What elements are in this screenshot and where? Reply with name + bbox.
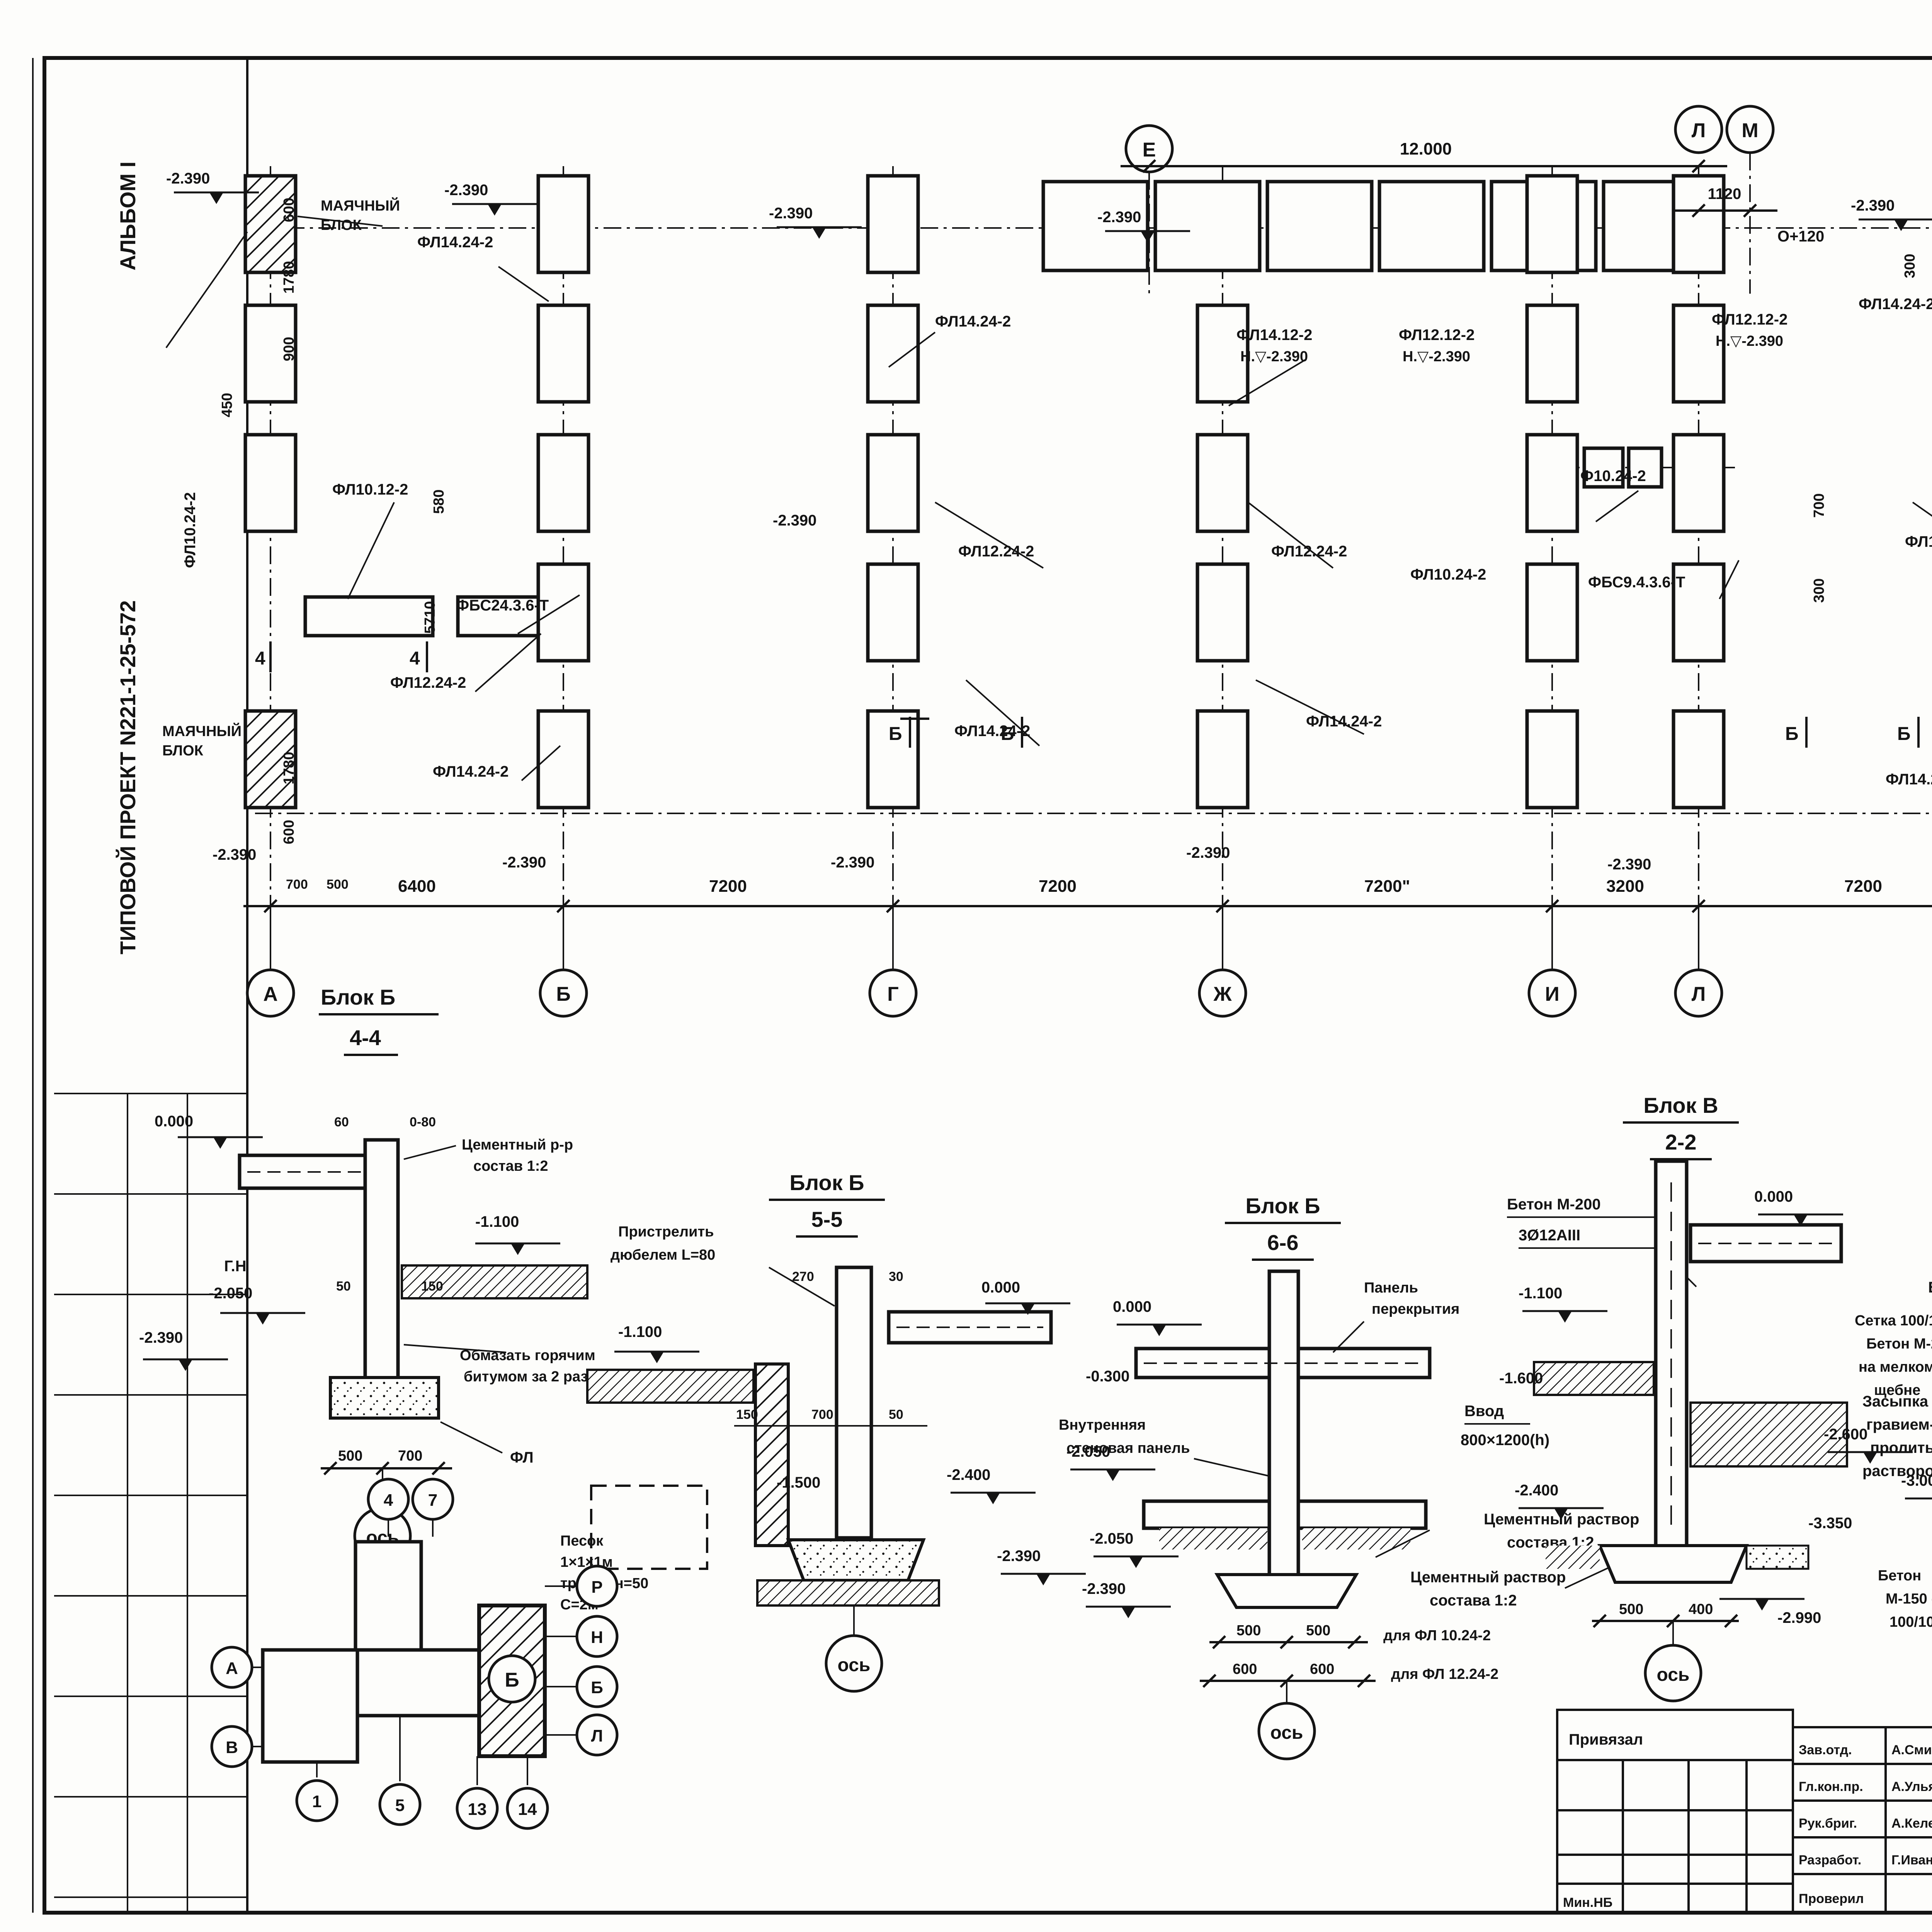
- elevation: -2.400: [947, 1466, 990, 1483]
- keyplan-axis: 7: [428, 1491, 437, 1510]
- stamp-cell: Проверил: [1799, 1891, 1864, 1906]
- dim: 700: [811, 1407, 833, 1422]
- plan-label: ФЛ14.24-2: [1306, 713, 1382, 730]
- cut-mark: 4: [255, 648, 265, 669]
- elevation: -2.390: [139, 1329, 183, 1346]
- stamp-cell: Рук.бриг.: [1799, 1816, 1857, 1831]
- elevation: 0.000: [155, 1113, 193, 1130]
- callout: 800×1200(h): [1461, 1432, 1549, 1449]
- dim: 600: [1310, 1661, 1334, 1677]
- dim: 300: [1811, 578, 1827, 603]
- stamp-cell: Г.Иванова: [1891, 1853, 1932, 1867]
- elevation: -1.100: [475, 1213, 519, 1230]
- callout: перекрытия: [1372, 1301, 1459, 1317]
- elevation: -2.390: [831, 854, 874, 871]
- elevation: -3.000: [1901, 1472, 1932, 1489]
- elevation: 0.000: [981, 1279, 1020, 1296]
- stamp-cell: А.Ульяновский: [1891, 1779, 1932, 1794]
- axis-bubble: Г: [887, 983, 898, 1005]
- elevation: О+120: [1777, 228, 1824, 245]
- stamp-cell: А.Смирновский: [1891, 1743, 1932, 1757]
- margin-album: АЛЬБОМ I: [116, 162, 140, 270]
- axis-dim: 7200: [1844, 877, 1882, 896]
- section-title: 6-6: [1267, 1230, 1299, 1255]
- axis-bubble: И: [1545, 983, 1559, 1005]
- axis-bubble: ось: [838, 1655, 871, 1675]
- callout: Внутренняя: [1059, 1417, 1146, 1433]
- section-2-2: Блок В 2-2 Бетон М-200 3Ø12АIII 0.000 -1…: [1410, 1093, 1932, 1701]
- callout: М-150 сетки: [1886, 1591, 1932, 1607]
- callout: БЛОК: [162, 743, 204, 759]
- section-8-8: Блок Г 8-8 0.000 -0.050 -0.500 200 Бетон…: [1808, 1103, 1932, 1639]
- dim: 50: [336, 1279, 351, 1294]
- section-title: Блок Б: [1245, 1194, 1320, 1218]
- elevation: -1.600: [1499, 1370, 1543, 1387]
- key-plan: Б 4 7 А В 1 5 13 14 Р Н Б Л: [212, 1479, 617, 1828]
- axis-bubble: Ж: [1213, 983, 1232, 1005]
- elevation: -2.390: [1097, 209, 1141, 226]
- plan-label: Н.▽-2.390: [1716, 333, 1783, 349]
- section-title: Блок В: [1643, 1093, 1718, 1117]
- plan-label: ФБС24.3.6-Т: [456, 597, 549, 614]
- dim: 1120: [1708, 185, 1742, 202]
- axis-bubble: М: [1742, 119, 1758, 142]
- plan-label: ФЛ14.12-2: [1236, 327, 1312, 344]
- plan-label: ФЛ14.24-2: [954, 723, 1030, 740]
- axis-bubble: А: [263, 983, 278, 1005]
- axis-dim: 7200: [1039, 877, 1077, 896]
- keyplan-axis: А: [226, 1659, 238, 1678]
- keyplan-block: Б: [505, 1669, 519, 1691]
- callout: битумом за 2 раза: [464, 1369, 596, 1385]
- callout: Цементный раствор: [1410, 1569, 1566, 1586]
- leader-lines: [166, 216, 1932, 885]
- elevation: -3.350: [1808, 1515, 1852, 1532]
- elevation: -2.390: [1082, 1580, 1126, 1597]
- plan-label: Н.▽-2.390: [1240, 349, 1308, 365]
- plan-label: ФЛ12.24-2: [390, 674, 466, 691]
- axis-bubble: Е: [1143, 139, 1156, 161]
- section-title: 5-5: [811, 1207, 843, 1231]
- dim: 50: [889, 1407, 903, 1422]
- elevation: -1.100: [1519, 1285, 1562, 1302]
- plan-label: ФЛ10.24-2: [1410, 566, 1486, 583]
- callout: Обмазать горячим: [460, 1347, 595, 1364]
- elevation: -2.990: [1777, 1609, 1821, 1626]
- dim: 150: [736, 1407, 758, 1422]
- keyplan-axis: 14: [518, 1800, 537, 1819]
- plan-label: ФЛ14.24-2: [417, 234, 493, 251]
- stamp-cell: Зав.отд.: [1799, 1743, 1852, 1757]
- elevation: -2.390: [444, 182, 488, 199]
- callout: пролитым цемент.: [1870, 1439, 1932, 1456]
- elevation: -2.600: [1824, 1426, 1867, 1443]
- callout: состава 1:2: [1430, 1592, 1517, 1609]
- axis-dim: 7200: [709, 877, 747, 896]
- plan-label: ФЛ14.24-2: [1886, 771, 1932, 788]
- elevation: -2.050: [1090, 1530, 1133, 1547]
- keyplan-axis: Р: [591, 1578, 602, 1597]
- stamp-cell: Гл.кон.пр.: [1799, 1779, 1863, 1794]
- axis-bubble: ось: [1270, 1723, 1303, 1743]
- axis-bubble: ось: [1657, 1665, 1690, 1685]
- plan-label: ФБС9.4.3.6-Т: [1588, 574, 1685, 591]
- cut-mark: Б: [1001, 724, 1014, 744]
- elevation: -2.400: [1515, 1482, 1558, 1499]
- plan-axis-row: 6400 7200 7200 7200" 3200 7200 7200 А Б …: [243, 877, 1932, 1055]
- callout: Бетон М-200: [1507, 1196, 1601, 1213]
- foundation-plan: ФЛ14.24-2 ФЛ14.24-2 ФЛ14.12-2 Н.▽-2.390 …: [162, 106, 1932, 1055]
- elevation: -2.390: [1186, 844, 1230, 861]
- plan-label: ФЛ12.24-2: [958, 543, 1034, 560]
- title-block: Привязал Мин.НБ Зав.отд. А.Смирновский Г…: [1557, 1615, 1932, 1932]
- callout: Цементный р-р: [462, 1137, 573, 1153]
- callout: Ввод: [1464, 1403, 1504, 1420]
- callout: Г.Н: [224, 1258, 247, 1275]
- callout: Бетон М-200: [1928, 1279, 1932, 1296]
- elevation: -2.390: [997, 1548, 1041, 1565]
- dim: 12.000: [1400, 139, 1452, 158]
- stamp-cell: А.Келерман: [1891, 1816, 1932, 1831]
- callout: МАЯЧНЫЙ: [321, 197, 400, 214]
- plan-elevations: -2.390 -2.390 -2.390 -2.390 -2.390 -2.39…: [166, 168, 1932, 877]
- plan-label: ФЛ12.12-2: [1399, 327, 1475, 344]
- dim: 700: [1811, 493, 1827, 518]
- section-title: Блок Б: [789, 1170, 864, 1195]
- dim: 150: [421, 1279, 443, 1294]
- dim: 600: [281, 820, 297, 844]
- plan-section-ref: 4-4: [350, 1026, 381, 1050]
- callout: Бетон М-200: [1866, 1336, 1932, 1352]
- axis-dim: 7200": [1364, 877, 1410, 896]
- dim: 1780: [281, 752, 297, 784]
- callout: на мелком: [1859, 1359, 1932, 1375]
- elevation: -0.300: [1086, 1368, 1129, 1385]
- dim: 500: [338, 1448, 362, 1464]
- dim: 500: [1306, 1622, 1330, 1639]
- dim: 900: [281, 337, 297, 361]
- callout: МАЯЧНЫЙ: [162, 722, 241, 740]
- elevation: -2.050: [209, 1285, 252, 1302]
- callout: Пристрелить: [618, 1224, 714, 1240]
- stamp-cell: Привязал: [1569, 1731, 1643, 1748]
- keyplan-axis: Н: [591, 1628, 603, 1647]
- elevation: -2.390: [502, 854, 546, 871]
- axis-dim: 6400: [398, 877, 436, 896]
- callout: состав 1:2: [473, 1158, 548, 1174]
- elevation: -1.100: [618, 1323, 662, 1340]
- dim: 400: [1689, 1601, 1713, 1617]
- elevation: -2.390: [773, 512, 816, 529]
- margin-project-number: ТИПОВОЙ ПРОЕКТ N221-1-25-572: [116, 600, 140, 954]
- keyplan-axis: Л: [591, 1726, 603, 1745]
- margin-grid: [54, 1094, 247, 1913]
- dim: 450: [219, 393, 235, 417]
- plan-label: ФЛ12.12-2: [1712, 311, 1787, 328]
- cut-mark: Б: [889, 724, 902, 744]
- dim: 600: [1233, 1661, 1257, 1677]
- axis-bubble: Л: [1692, 983, 1706, 1005]
- dim: 0-80: [410, 1115, 436, 1129]
- callout: Песок: [560, 1533, 604, 1549]
- plan-label: ФЛ14.24-2: [935, 313, 1011, 330]
- elevation: -2.390: [1851, 197, 1895, 214]
- plan-label: ФЛ10.12-2: [332, 481, 408, 498]
- dim: 60: [334, 1115, 349, 1129]
- plan-label: ФЛ14.24-2: [433, 763, 509, 780]
- callout: ФЛ: [510, 1449, 534, 1466]
- axis-bubble: Б: [556, 983, 570, 1005]
- keyplan-axis: 4: [384, 1491, 393, 1510]
- sheet-frame: 12 ТИПОВОЙ ПРОЕКТ N221-1-25-572 АЛЬБОМ I: [33, 19, 1932, 1913]
- keyplan-axis: В: [226, 1738, 238, 1757]
- elevation: -2.390: [166, 170, 210, 187]
- lighthouse-block-callouts: МАЯЧНЫЙ БЛОК МАЯЧНЫЙ БЛОК МАЯЧНЫЙ БЛОК М…: [162, 181, 1932, 894]
- callout: для ФЛ 12.24-2: [1391, 1666, 1498, 1682]
- dim: 580: [431, 490, 447, 514]
- callout: 100/100/8/8: [1889, 1614, 1932, 1630]
- stamp-cell: Разработ.: [1799, 1853, 1861, 1867]
- callout: Сетка 100/100/6/6: [1855, 1313, 1932, 1329]
- dim: 500: [1619, 1601, 1643, 1617]
- callout: 3Ø12АIII: [1519, 1227, 1580, 1244]
- keyplan-axis: Б: [591, 1678, 603, 1697]
- dim: 5710: [422, 601, 438, 634]
- cut-mark: Б: [1897, 724, 1911, 744]
- stamp-cell: Мин.НБ: [1563, 1895, 1612, 1910]
- elevation: -1.500: [777, 1474, 820, 1491]
- callout: Бетон: [1878, 1568, 1921, 1584]
- callout: гравием-220 мм: [1866, 1416, 1932, 1433]
- dim: 30: [889, 1269, 903, 1284]
- elevation: -2.390: [769, 205, 813, 222]
- cut-mark: Б: [1785, 724, 1799, 744]
- blueprint-sheet: 12 ТИПОВОЙ ПРОЕКТ N221-1-25-572 АЛЬБОМ I: [0, 0, 1932, 1932]
- callout: для ФЛ 10.24-2: [1383, 1628, 1491, 1644]
- dim: 1780: [281, 261, 297, 294]
- drawing-canvas: 12 ТИПОВОЙ ПРОЕКТ N221-1-25-572 АЛЬБОМ I: [0, 0, 1932, 1932]
- plan-label: ФЛ12.24-2: [1905, 533, 1932, 550]
- plan-block-ref: Блок Б: [321, 985, 395, 1009]
- plan-label: Н.▽-2.390: [1403, 349, 1470, 365]
- callout: дюбелем L=80: [611, 1247, 715, 1263]
- dim: 500: [327, 877, 349, 892]
- elevation: -2.390: [1607, 856, 1651, 873]
- keyplan-axis: 13: [468, 1800, 487, 1819]
- plan-label-vertical: ФЛ10.24-2: [182, 492, 199, 568]
- cut-mark: 4: [410, 648, 420, 669]
- dim: 270: [792, 1269, 814, 1284]
- dim: 700: [286, 877, 308, 892]
- callout: щебне: [1874, 1382, 1920, 1398]
- axis-dim: 3200: [1606, 877, 1644, 896]
- section-title: 2-2: [1665, 1130, 1697, 1154]
- callout: Панель: [1364, 1280, 1418, 1296]
- axis-strip-B: [538, 176, 588, 808]
- axis-strip-G: [868, 176, 918, 808]
- elevation: -2.390: [213, 846, 256, 863]
- callout: БЛОК: [321, 217, 362, 233]
- callout: стеновая панель: [1066, 1440, 1190, 1456]
- elevation: 0.000: [1113, 1298, 1151, 1315]
- plan-label: ФЛ12.24-2: [1271, 543, 1347, 560]
- keyplan-axis: 1: [312, 1792, 321, 1811]
- dim: 700: [398, 1448, 422, 1464]
- elevation: 0.000: [1754, 1188, 1793, 1205]
- plan-label: Ф10.24-2: [1580, 468, 1646, 485]
- axis-bubble: Л: [1692, 119, 1706, 142]
- dim: 300: [1902, 254, 1918, 278]
- dim: 500: [1236, 1622, 1261, 1639]
- plan-label: ФЛ14.24-2: [1859, 296, 1932, 313]
- section-6-6: Блок Б 6-6 0.000 Панель перекрытия -0.30…: [1059, 1194, 1639, 1759]
- dim: 600: [281, 198, 297, 222]
- axis-strip-L: [1673, 176, 1724, 808]
- keyplan-axis: 5: [395, 1796, 405, 1815]
